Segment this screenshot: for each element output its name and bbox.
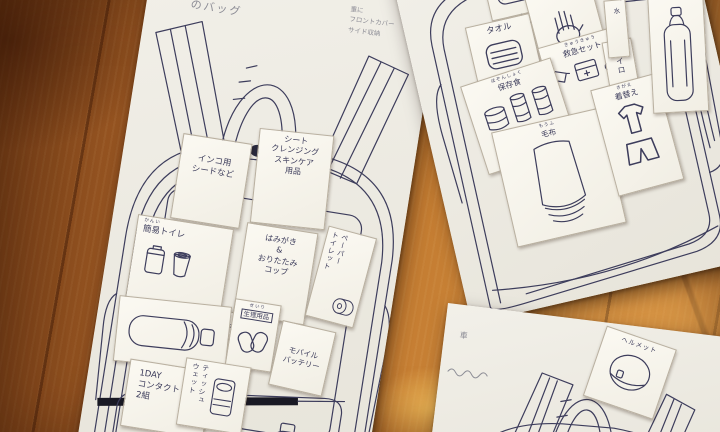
water-bottle-icon [122, 306, 222, 362]
first-aid-box-icon [571, 55, 603, 87]
note-text: 1DAY コンタクト 2組 [135, 368, 182, 407]
note-text: はみがき & おりたたみ コップ [255, 233, 301, 280]
note-text: 簡易トイレ [142, 223, 186, 241]
bottle-in-pocket-sketch [267, 422, 301, 432]
sticky-note-water-bottle-side [647, 0, 709, 114]
note-text: トイレット ペーパー [320, 230, 349, 274]
toilet-bag-icon [142, 241, 169, 276]
paper-top-right: タオル 軍手 きゅうきゅう 救急セット [386, 0, 720, 324]
note-text: 生理用品 [240, 308, 273, 323]
note-text: モバイル バッテリー [282, 345, 323, 372]
sanitary-pads-icon [233, 321, 272, 360]
water-bottle-icon [656, 3, 701, 105]
toilet-paper-icon [328, 291, 358, 322]
sticky-note-wet-tissue: ウェット ティッシュ [176, 357, 252, 432]
blanket-roll-icon [519, 133, 601, 233]
wet-tissue-icon [206, 374, 239, 422]
sticky-note-parakeet-seed: インコ用 シードなど [170, 133, 253, 229]
sticky-note-cleansing-skincare: シート クレンジング スキンケア 用品 [250, 128, 335, 230]
note-text: 水 [611, 7, 621, 15]
photo-backpack-emergency-kit-planning: のバッグ 重に フロントカバー サイド収納 インコ用 シードなど シート クレン… [0, 0, 720, 432]
paper-left: のバッグ 重に フロントカバー サイド収納 インコ用 シードなど シート クレン… [77, 0, 444, 432]
trash-bin-icon [167, 245, 196, 280]
pencil-mark: 車 [458, 331, 470, 340]
note-text: インコ用 シードなど [191, 153, 236, 181]
note-text: タオル [485, 21, 512, 38]
note-text: ウェット ティッシュ [185, 362, 211, 405]
note-text: シート クレンジング スキンケア 用品 [268, 133, 320, 179]
paper-bottom-right: 車 ヘルメット [429, 303, 720, 432]
